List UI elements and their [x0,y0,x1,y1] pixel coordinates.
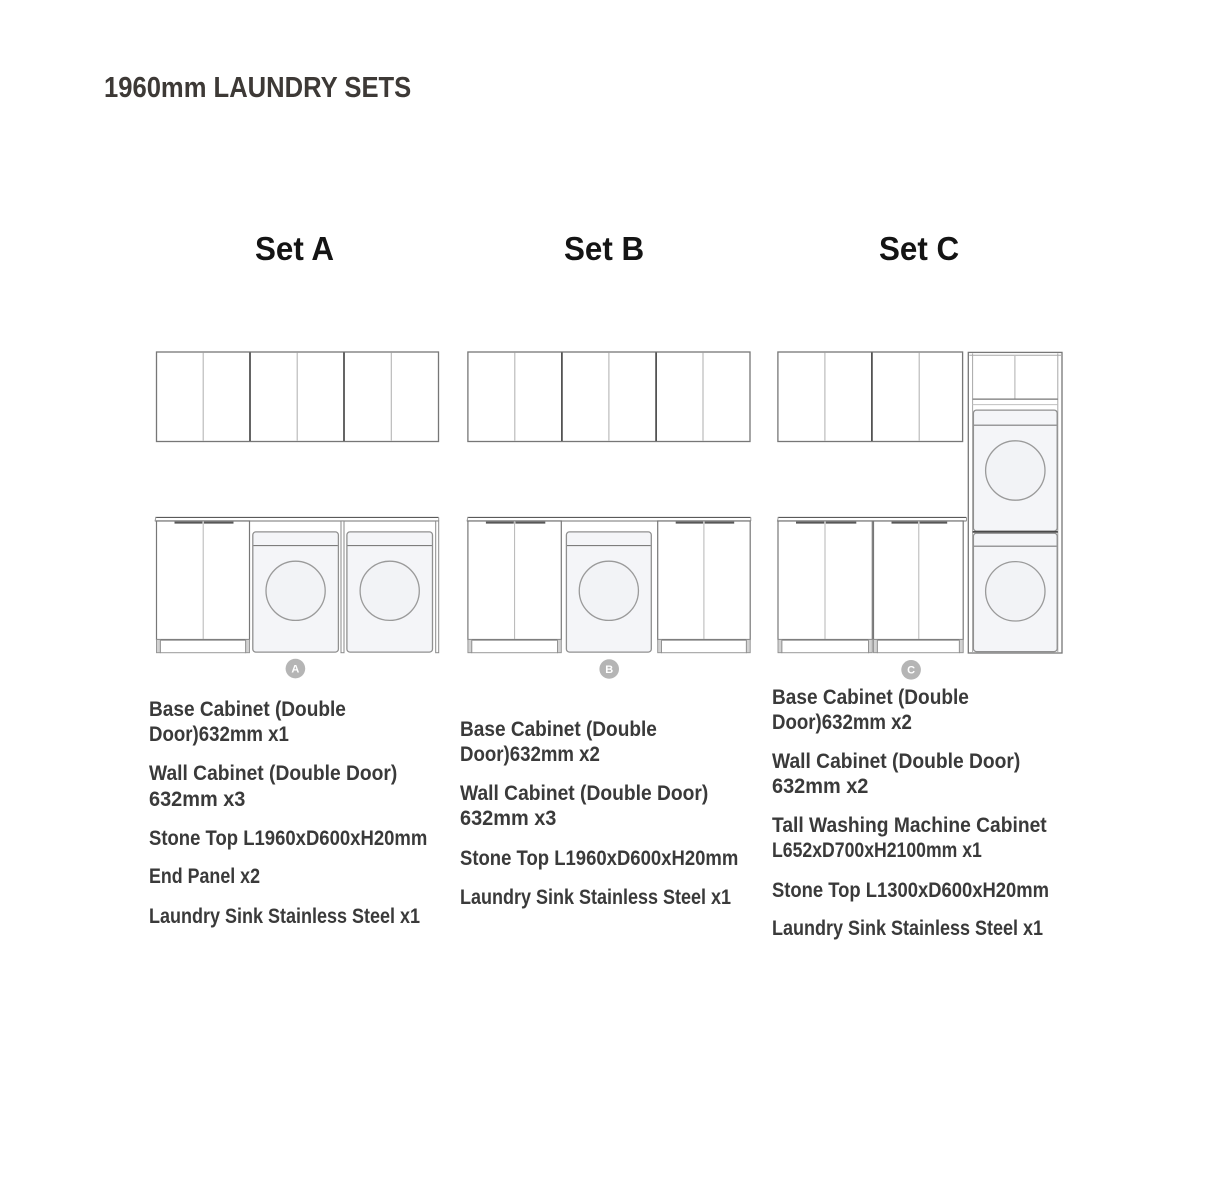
svg-text:B: B [605,664,613,676]
svg-text:C: C [907,665,915,677]
svg-text:A: A [291,664,299,676]
